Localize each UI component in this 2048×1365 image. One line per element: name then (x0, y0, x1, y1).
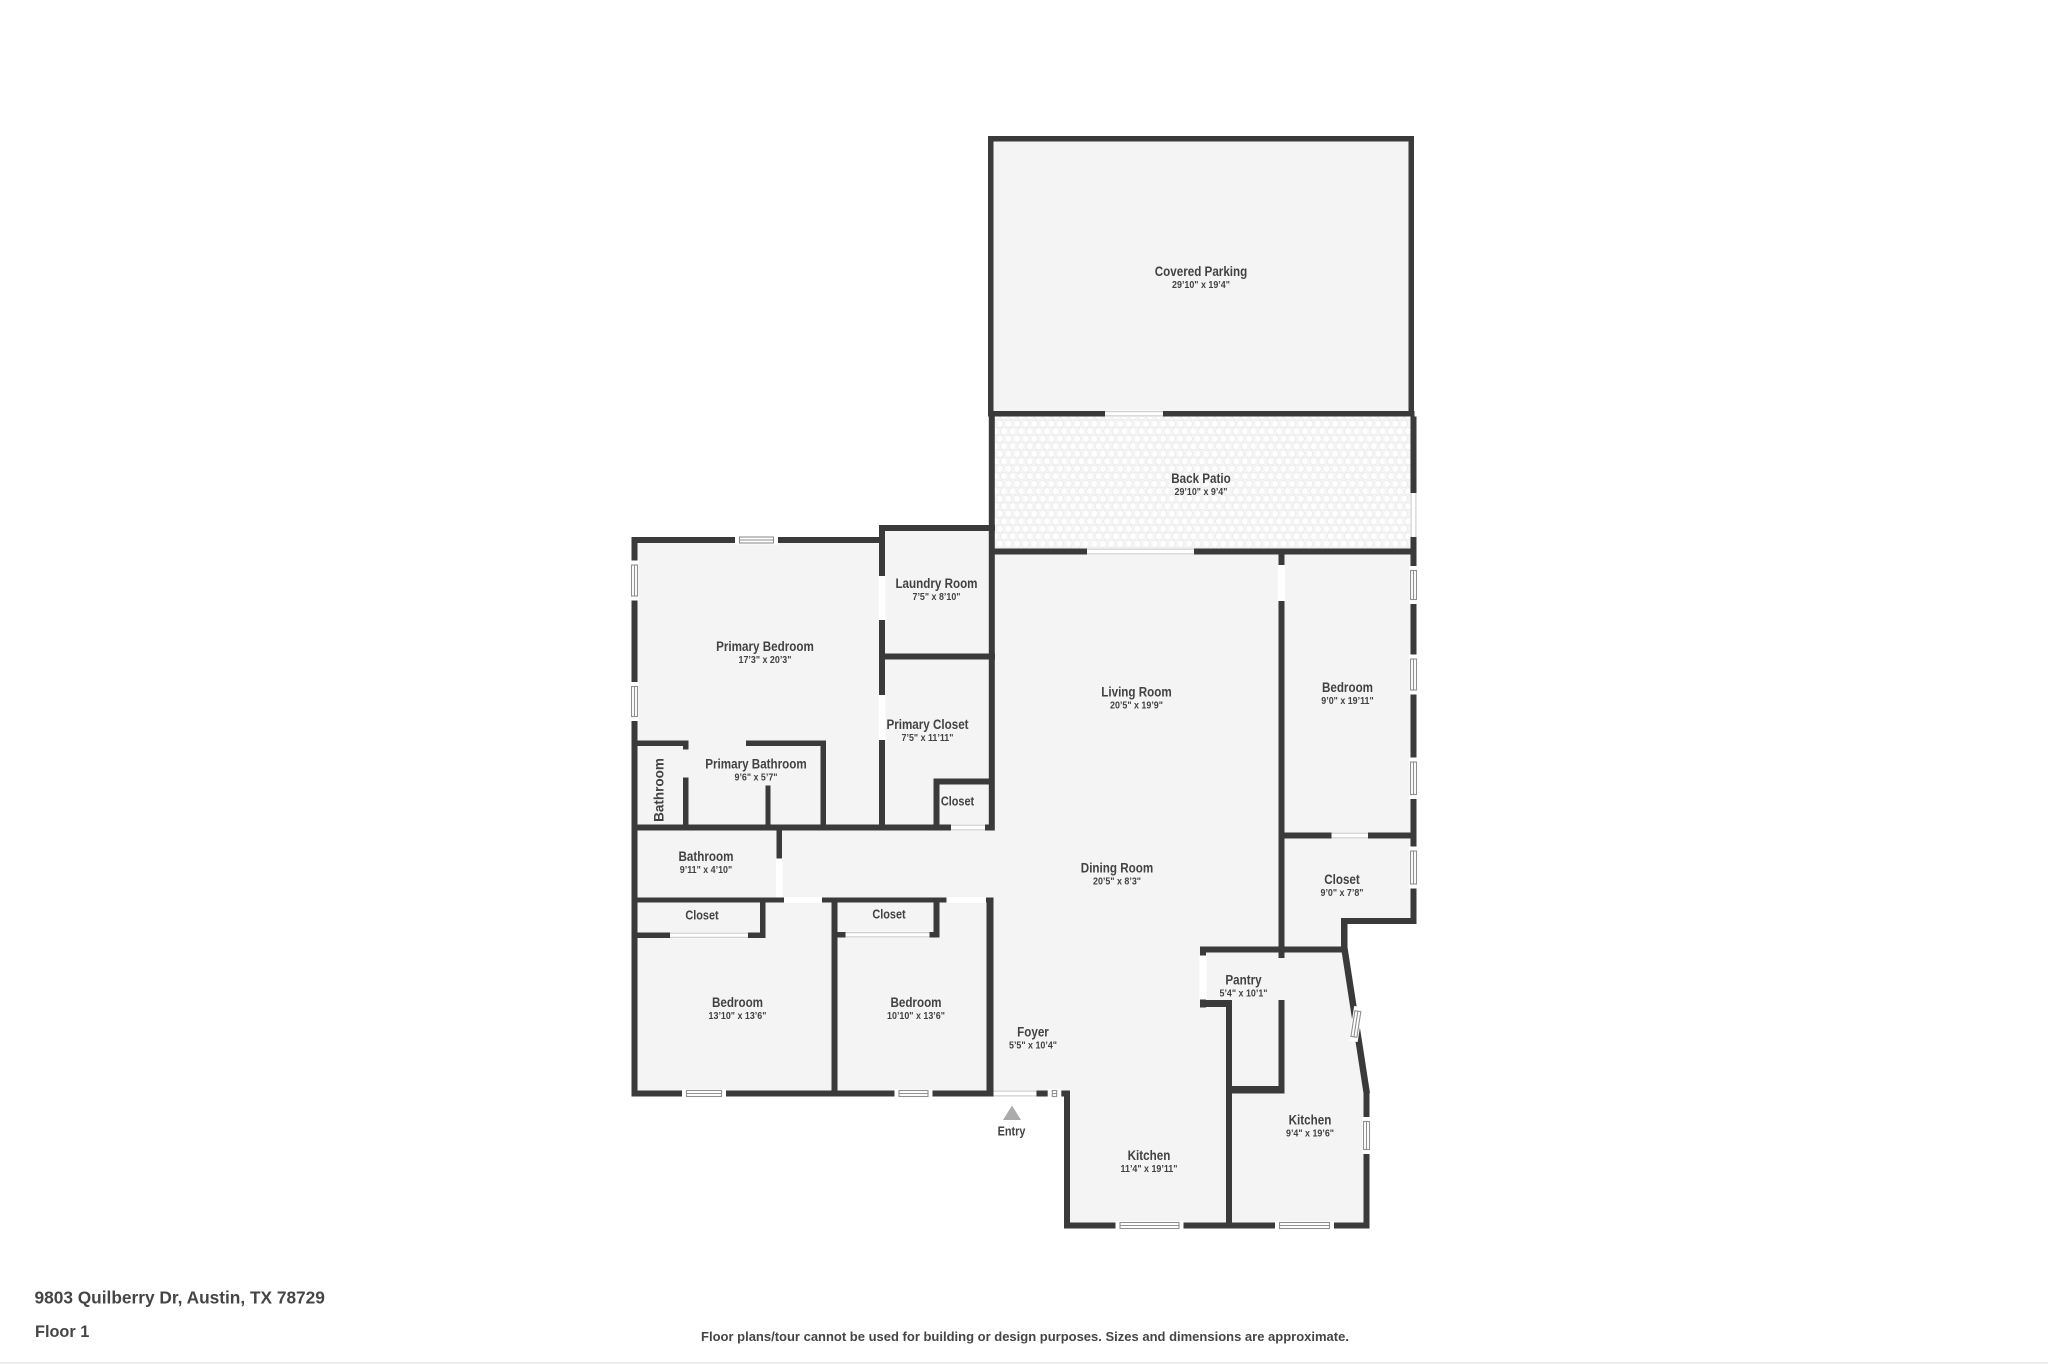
svg-text:Entry: Entry (998, 1125, 1026, 1139)
svg-text:Back Patio: Back Patio (1171, 471, 1231, 486)
svg-text:Living Room: Living Room (1101, 685, 1172, 700)
svg-text:Bedroom: Bedroom (1322, 680, 1373, 695)
svg-text:Primary Bedroom: Primary Bedroom (716, 639, 814, 654)
svg-text:Closet: Closet (1324, 872, 1360, 887)
svg-text:5’4" x 10’1": 5’4" x 10’1" (1220, 988, 1268, 999)
svg-text:9’6" x 5’7": 9’6" x 5’7" (735, 772, 778, 783)
svg-text:20’5" x 8’3": 20’5" x 8’3" (1093, 876, 1141, 887)
svg-text:9’4" x 19’6": 9’4" x 19’6" (1286, 1128, 1334, 1139)
svg-text:29’10" x 19’4": 29’10" x 19’4" (1172, 280, 1230, 291)
svg-text:9’0" x 7’8": 9’0" x 7’8" (1321, 888, 1364, 899)
svg-text:Bathroom: Bathroom (679, 849, 734, 864)
svg-text:17’3" x 20’3": 17’3" x 20’3" (739, 655, 792, 666)
svg-text:Kitchen: Kitchen (1289, 1113, 1332, 1128)
svg-text:Foyer: Foyer (1017, 1025, 1049, 1040)
svg-text:Laundry Room: Laundry Room (895, 576, 977, 591)
svg-text:9803 Quilberry Dr, Austin, TX: 9803 Quilberry Dr, Austin, TX 78729 (35, 1288, 325, 1308)
svg-text:13’10" x 13’6": 13’10" x 13’6" (709, 1011, 767, 1022)
svg-text:Covered Parking: Covered Parking (1155, 264, 1248, 279)
svg-text:Closet: Closet (685, 909, 719, 923)
svg-text:Closet: Closet (941, 795, 975, 809)
svg-text:29’10" x 9’4": 29’10" x 9’4" (1175, 487, 1228, 498)
svg-text:Floor 1: Floor 1 (35, 1323, 89, 1341)
svg-text:7’5" x 8’10": 7’5" x 8’10" (913, 592, 961, 603)
svg-text:5’5" x 10’4": 5’5" x 10’4" (1009, 1040, 1057, 1051)
svg-text:Dining Room: Dining Room (1081, 861, 1153, 876)
svg-text:10’10" x 13’6": 10’10" x 13’6" (887, 1011, 945, 1022)
svg-text:Kitchen: Kitchen (1128, 1148, 1171, 1163)
svg-text:Bedroom: Bedroom (712, 995, 763, 1010)
svg-text:Floor plans/tour cannot be use: Floor plans/tour cannot be used for buil… (701, 1329, 1349, 1344)
svg-text:11’4" x 19’11": 11’4" x 19’11" (1121, 1164, 1178, 1175)
svg-text:20’5" x 19’9": 20’5" x 19’9" (1110, 700, 1163, 711)
svg-text:7’5" x 11’11": 7’5" x 11’11" (902, 733, 954, 744)
svg-text:Primary Closet: Primary Closet (886, 717, 969, 732)
svg-text:9’11" x 4’10": 9’11" x 4’10" (680, 865, 732, 876)
svg-text:Pantry: Pantry (1225, 973, 1262, 988)
svg-text:Bathroom: Bathroom (652, 758, 667, 822)
svg-text:Bedroom: Bedroom (890, 995, 941, 1010)
svg-text:Primary Bathroom: Primary Bathroom (705, 757, 807, 772)
svg-text:Closet: Closet (872, 908, 906, 922)
svg-text:9’0" x 19’11": 9’0" x 19’11" (1321, 696, 1373, 707)
